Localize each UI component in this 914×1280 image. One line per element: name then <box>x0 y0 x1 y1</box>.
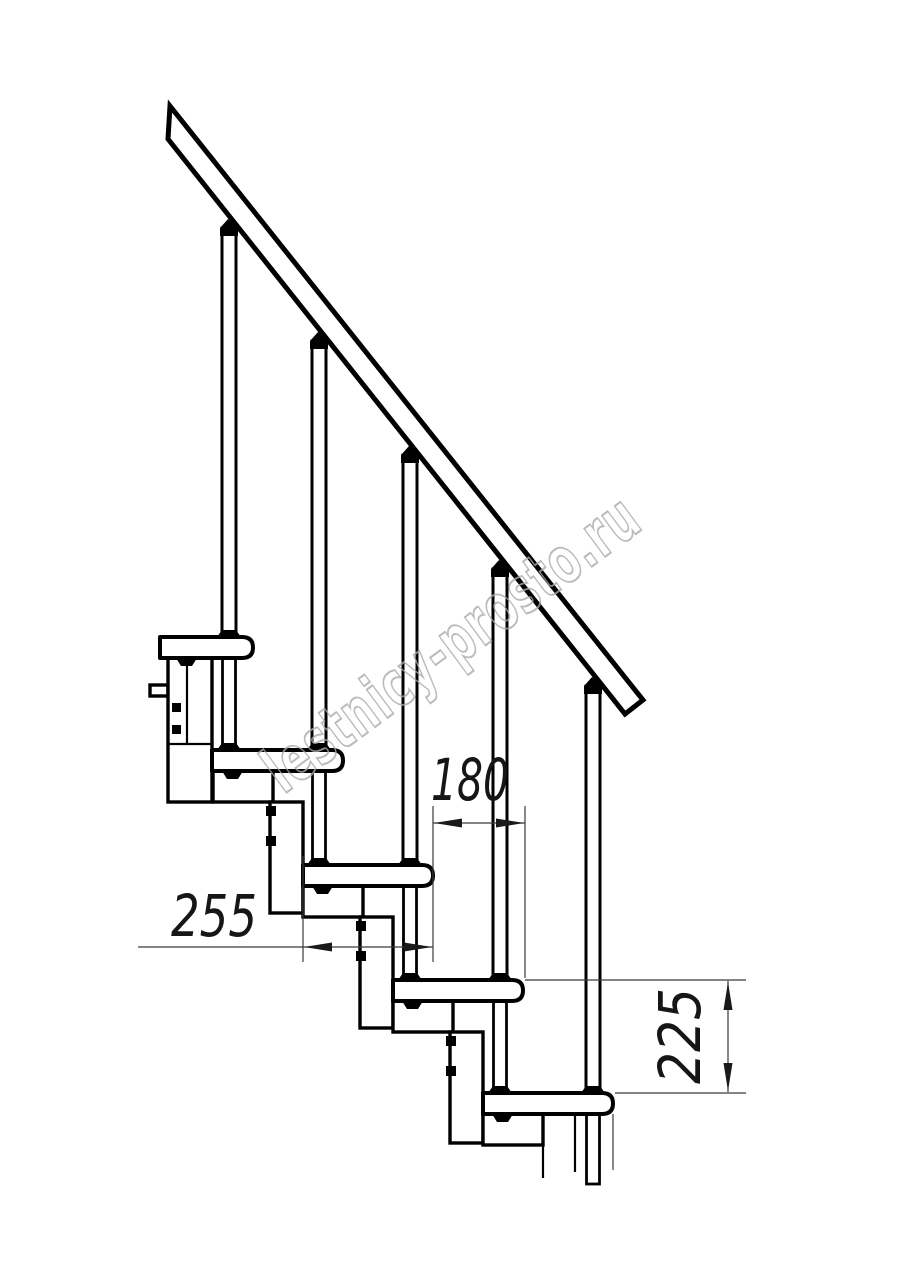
module-box-5 <box>483 1114 543 1145</box>
dimension-180: 180 <box>431 746 525 978</box>
bolt <box>266 806 276 816</box>
bolt <box>446 1036 456 1046</box>
foot-connector <box>307 858 331 865</box>
foot-connector <box>217 743 241 750</box>
column-3 <box>360 917 393 1028</box>
foot-connector <box>398 973 422 980</box>
arrow-right-icon <box>496 819 524 828</box>
tread-1 <box>160 637 253 658</box>
bolt <box>446 1066 456 1076</box>
arrow-down-icon <box>724 1063 733 1091</box>
column-2 <box>270 802 303 913</box>
tread-3 <box>303 865 433 886</box>
dimension-value-225: 225 <box>646 988 714 1084</box>
stair-technical-drawing: lestnicy-prosto.ru 180 255 225 <box>0 0 914 1280</box>
bolt <box>172 725 181 734</box>
baluster-5 <box>586 686 600 1093</box>
bolt <box>172 703 181 712</box>
foot-connector <box>488 1086 512 1093</box>
dimension-lines-180 <box>433 806 525 978</box>
arrow-left-icon <box>434 819 462 828</box>
column-5-lines <box>543 1114 575 1178</box>
rod-3 <box>404 886 417 980</box>
rod-1 <box>223 658 236 750</box>
bolt <box>356 921 366 931</box>
dimension-225: 225 <box>525 980 746 1170</box>
tread-5 <box>483 1093 613 1114</box>
column-4 <box>450 1032 483 1143</box>
rod-4 <box>494 1001 507 1093</box>
module-box-2 <box>213 771 273 802</box>
dimension-value-255: 255 <box>171 882 257 950</box>
module-box-4 <box>393 1001 453 1032</box>
dimension-value-180: 180 <box>431 746 509 814</box>
baluster-1 <box>222 228 236 637</box>
arrow-right-icon <box>404 943 432 952</box>
module-box-3 <box>303 886 363 917</box>
arrow-left-icon <box>304 943 332 952</box>
baluster-2 <box>312 341 326 750</box>
rod-5 <box>587 1114 600 1184</box>
module-tab <box>150 685 168 696</box>
drawing-svg: lestnicy-prosto.ru 180 255 225 <box>0 0 914 1280</box>
arrow-up-icon <box>724 982 733 1010</box>
bolt <box>266 836 276 846</box>
tread-4 <box>393 980 523 1001</box>
bolt <box>356 951 366 961</box>
